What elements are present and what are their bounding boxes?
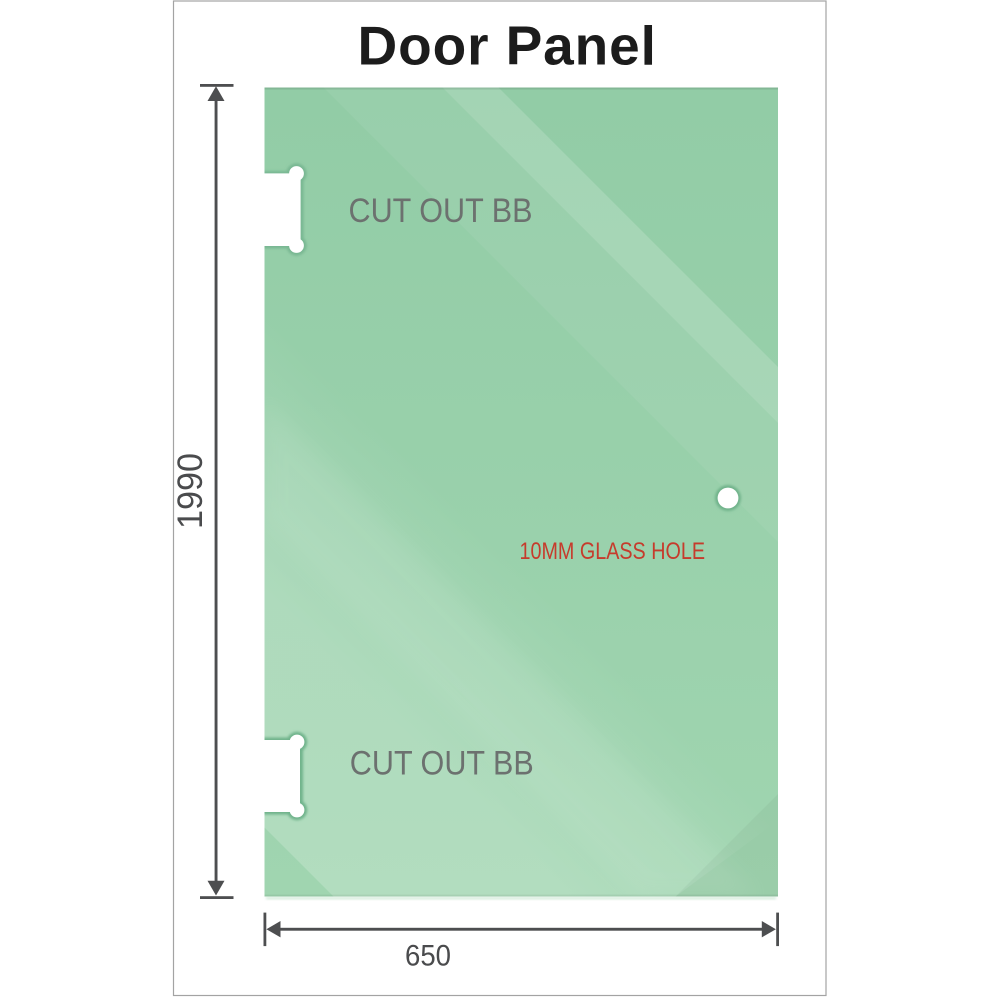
svg-text:650: 650	[405, 940, 451, 973]
svg-text:CUT OUT BB: CUT OUT BB	[349, 192, 533, 230]
svg-text:CUT OUT BB: CUT OUT BB	[350, 745, 534, 783]
svg-text:1990: 1990	[171, 453, 210, 529]
svg-text:10MM GLASS HOLE: 10MM GLASS HOLE	[520, 538, 706, 565]
svg-text:Door Panel: Door Panel	[358, 15, 657, 77]
